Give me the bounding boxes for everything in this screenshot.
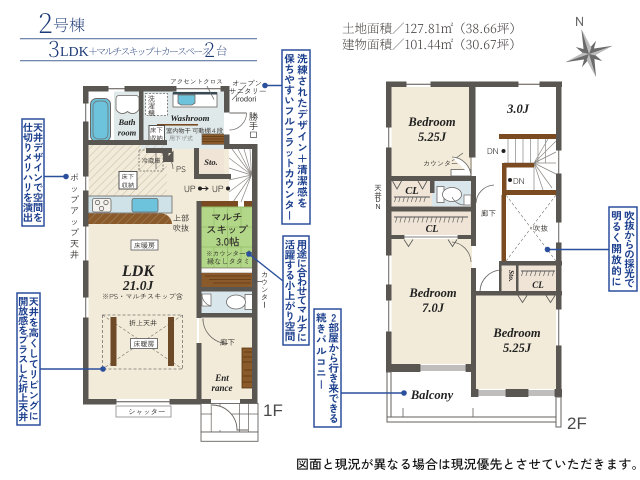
svg-text:3.0J: 3.0J	[506, 102, 530, 116]
svg-text:5.25J: 5.25J	[418, 130, 447, 144]
svg-text:Bedroom: Bedroom	[492, 326, 541, 340]
svg-text:CL: CL	[532, 280, 544, 290]
svg-text:CL: CL	[426, 224, 439, 235]
svg-text:5.25J: 5.25J	[503, 341, 532, 355]
svg-text:2F: 2F	[567, 414, 587, 433]
svg-text:Balcony: Balcony	[410, 388, 454, 402]
svg-text:LDK: LDK	[60, 45, 89, 60]
svg-text:N: N	[375, 204, 380, 211]
svg-text:Ent: Ent	[214, 373, 229, 383]
svg-text:Bath: Bath	[117, 117, 135, 127]
svg-text:Sto.: Sto.	[507, 270, 516, 282]
svg-text:7.0J: 7.0J	[422, 301, 445, 315]
svg-text:rance: rance	[212, 383, 233, 393]
svg-text:D: D	[375, 197, 380, 204]
svg-text:Bedroom: Bedroom	[407, 115, 456, 129]
svg-text:1F: 1F	[263, 401, 283, 420]
svg-text:irodori: irodori	[236, 95, 257, 104]
svg-text:Bedroom: Bedroom	[408, 286, 457, 300]
svg-text:CL: CL	[405, 186, 418, 197]
svg-text:Washroom: Washroom	[171, 113, 210, 123]
svg-text:room: room	[118, 128, 137, 138]
svg-text:Sto.: Sto.	[204, 157, 217, 167]
svg-text:21.0J: 21.0J	[122, 278, 155, 293]
